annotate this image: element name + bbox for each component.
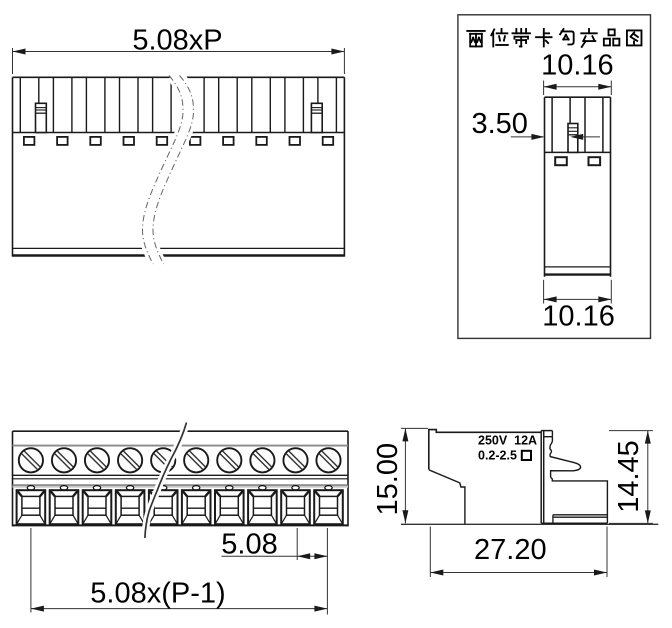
svg-text:5.08x(P-1): 5.08x(P-1) xyxy=(90,578,225,610)
svg-text:14.45: 14.45 xyxy=(613,440,645,513)
svg-text:10.16: 10.16 xyxy=(541,49,614,81)
svg-text:15.00: 15.00 xyxy=(372,443,404,516)
svg-text:27.20: 27.20 xyxy=(474,534,547,566)
svg-text:5.08: 5.08 xyxy=(221,528,277,560)
svg-text:3.50: 3.50 xyxy=(471,108,527,140)
svg-text:0.2-2.5: 0.2-2.5 xyxy=(478,449,517,463)
svg-text:5.08xP: 5.08xP xyxy=(132,24,222,56)
svg-text:10.16: 10.16 xyxy=(542,301,615,333)
svg-text:250V 12A: 250V 12A xyxy=(478,433,537,447)
